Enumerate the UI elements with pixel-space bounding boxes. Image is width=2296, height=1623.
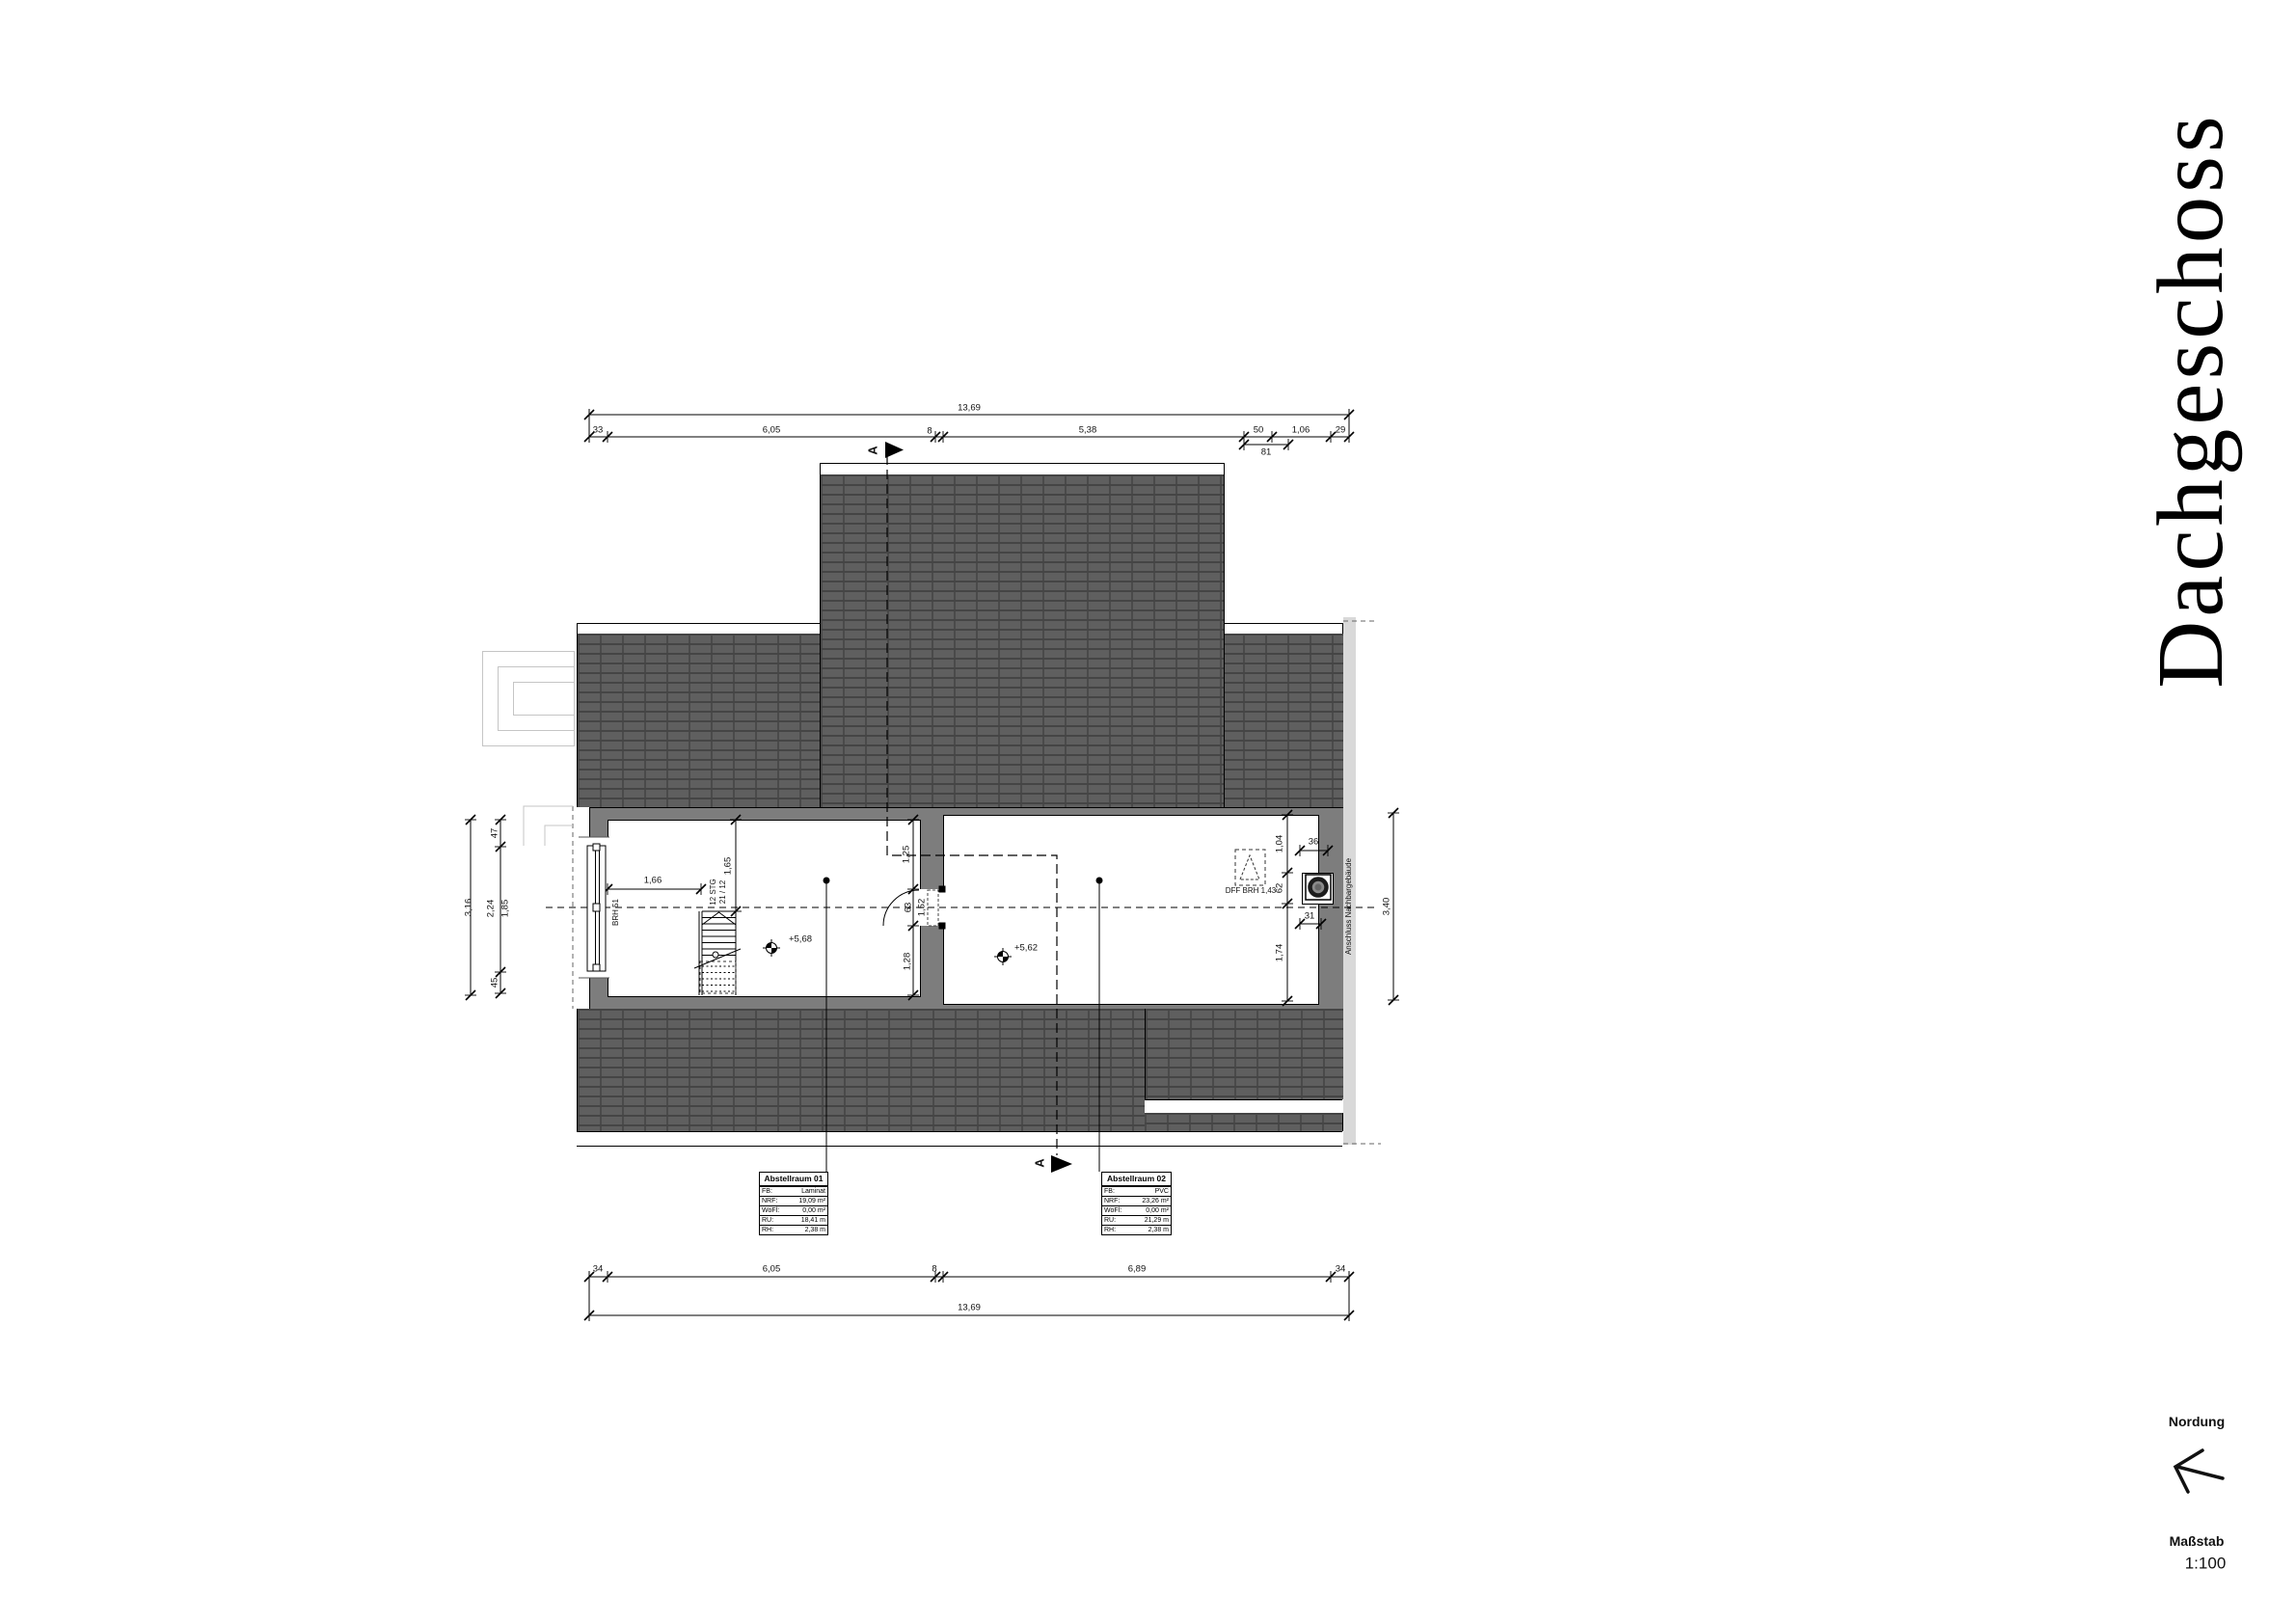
dim-top-538: 5,38 [1079,425,1097,435]
dim-left-224: 2,24 [486,900,496,918]
dim-bottom-total: 13,69 [958,1303,981,1312]
dim-bottom-689: 6,89 [1128,1264,1147,1274]
dim-left-total: 3,16 [464,899,473,917]
dim-left-185: 1,85 [500,900,510,918]
dim-door-152: 1,52 [917,899,927,917]
dim-top-8: 8 [927,426,932,436]
room-table-2: Abstellraum 02 FB:PVC NRF:23,26 m² WoFl:… [1101,1172,1172,1235]
table-row: WoFl:0,00 m² [760,1205,827,1215]
window-niche [582,837,608,978]
table-row: RU:21,29 m [1102,1215,1171,1225]
dim-top-total: 13,69 [958,403,981,413]
dim-right-174: 1,74 [1275,944,1284,962]
dormer-roof-surface [820,474,1225,807]
dim-door-128: 1,28 [903,953,912,971]
neighbor-roof-outline-3 [513,682,575,716]
dim-bottom-8: 8 [932,1264,936,1274]
dim-right-total: 3,40 [1382,898,1391,916]
neighbor-strip-label: Anschluss Nachbargebäude [1345,858,1353,955]
table-row: FB:Laminat [760,1186,827,1196]
dim-bottom-34l: 34 [593,1264,604,1274]
sheet-title: Dachgeschoss [2138,34,2244,767]
scale-label: Maßstab [2170,1534,2225,1548]
dim-left-45: 45 [490,978,500,988]
table-row: NRF:19,09 m² [760,1196,827,1205]
room-1-interior [608,820,921,997]
table-row: RU:18,41 m [760,1215,827,1225]
room-table-1-title: Abstellraum 01 [760,1173,827,1186]
north-arrow-icon [2175,1450,2223,1492]
scale-value: 1:100 [2185,1555,2227,1572]
dim-right-62: 62 [1275,883,1284,894]
dim-left-47: 47 [490,828,500,839]
dim-top-50: 50 [1254,425,1264,435]
dim-right-31: 31 [1305,911,1315,921]
room-2-interior [943,815,1319,1005]
dim-bottom-605: 6,05 [763,1264,781,1274]
room-table-2-title: Abstellraum 02 [1102,1173,1171,1186]
level-room2: +5,62 [1014,943,1038,953]
dim-interior-165: 1,65 [723,857,733,876]
dim-top-29: 29 [1336,425,1346,435]
room-table-1: Abstellraum 01 FB:Laminat NRF:19,09 m² W… [759,1172,828,1235]
dim-right-104: 1,04 [1275,835,1284,853]
roof-window-label: DFF BRH 1,43 [1226,887,1276,895]
lower-roof-eave-band [577,1131,1342,1147]
chimney-niche [1302,873,1334,905]
north-label: Nordung [2169,1415,2225,1428]
stair-label-line2: 21 / 12 [719,880,727,904]
table-row: FB:PVC [1102,1186,1171,1196]
dim-bottom-34r: 34 [1336,1264,1346,1274]
table-row: RH:2,38 m [760,1225,827,1234]
lower-roof-surface-left [577,1009,1146,1131]
neighbor-roof-steps [524,806,573,846]
level-room1: +5,68 [789,934,812,944]
floor-plan-sheet: 13,69 33 6,05 8 5,38 50 81 1,06 29 34 6,… [0,0,2296,1623]
section-arrow-top-icon [885,442,904,458]
table-row: WoFl:0,00 m² [1102,1205,1171,1215]
dim-right-36: 36 [1309,837,1319,847]
lower-roof-surface-right-lower [1145,1113,1343,1131]
dim-top-106: 1,06 [1292,425,1310,435]
dim-top-33: 33 [593,425,604,435]
lower-roof-surface-right-upper [1145,1009,1344,1099]
dim-interior-166: 1,66 [644,876,662,885]
window-sill-label: BRH 51 [612,899,620,926]
dim-door-125: 1,25 [902,846,911,864]
dim-top-81: 81 [1261,447,1272,457]
dim-top-605: 6,05 [763,425,781,435]
table-row: RH:2,38 m [1102,1225,1171,1234]
section-arrow-bottom-icon [1051,1155,1072,1173]
section-letter-bottom: A [1034,1158,1046,1167]
table-row: NRF:23,26 m² [1102,1196,1171,1205]
stair-label-line1: 12 STG [710,879,717,906]
section-letter-top: A [867,446,879,454]
dim-door-63: 63 [904,903,913,913]
